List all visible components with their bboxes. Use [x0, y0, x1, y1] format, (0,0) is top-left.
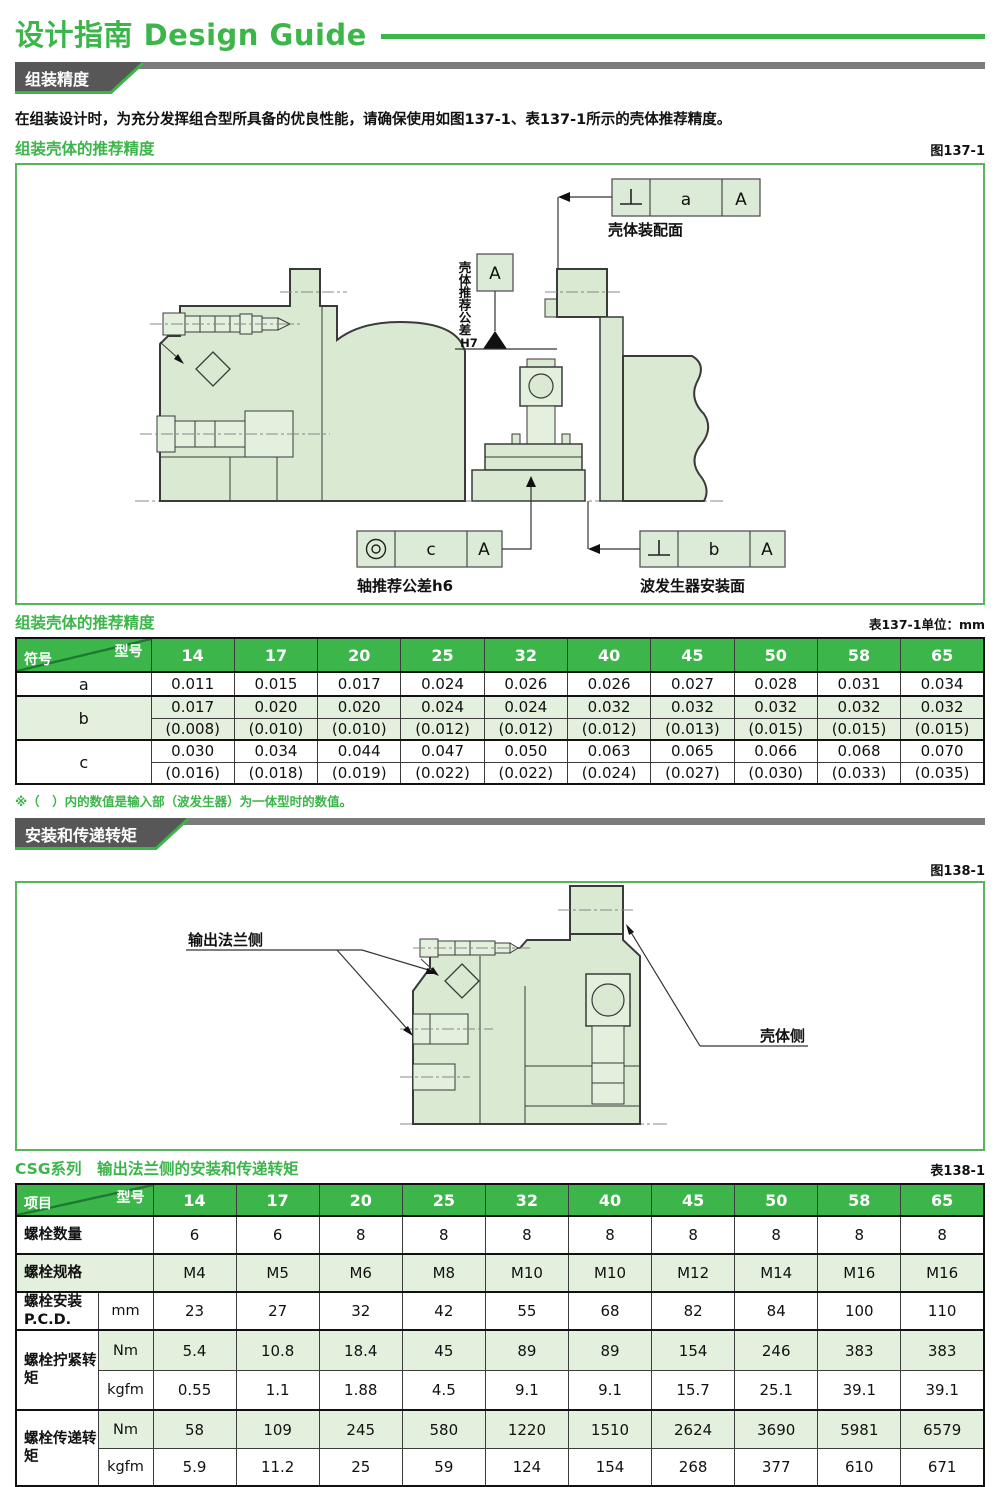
accuracy-table: 型号 符号 14 17 20 25 32 40 45 50 58 65 a 0.… — [15, 637, 985, 785]
cell: 8 — [485, 1216, 568, 1254]
cell: 1.1 — [236, 1370, 319, 1410]
figure1-heading-row: 组装壳体的推荐精度 图137-1 — [15, 137, 985, 159]
cell: 27 — [236, 1292, 319, 1330]
table-row: (0.016) (0.018) (0.019) (0.022) (0.022) … — [16, 762, 984, 784]
figure1: a A 壳体装配面 壳体推荐公差 H7 A c A — [15, 163, 985, 605]
corner-bottom-label: 项目 — [24, 1193, 52, 1213]
corner-top-label: 型号 — [115, 641, 143, 661]
model-header: 65 — [901, 1184, 984, 1216]
cell: 0.024 — [484, 696, 567, 718]
cell: M10 — [568, 1254, 651, 1292]
cell: 0.028 — [734, 672, 817, 696]
cell: 6 — [153, 1216, 236, 1254]
model-header: 32 — [484, 638, 567, 672]
symbol-cell: a — [16, 672, 151, 696]
cell: 110 — [901, 1292, 984, 1330]
fcf-b-datum: A — [761, 540, 773, 560]
model-header: 50 — [734, 638, 817, 672]
datum-a-letter: A — [489, 264, 501, 284]
cell: 58 — [153, 1410, 236, 1448]
section-banner-assembly-accuracy: 组装精度 — [15, 62, 985, 98]
cell: 0.020 — [318, 696, 401, 718]
model-header: 50 — [735, 1184, 818, 1216]
cell: 55 — [485, 1292, 568, 1330]
cell: 610 — [818, 1448, 901, 1486]
table1-ref: 表137-1单位：mm — [869, 614, 985, 633]
cell: 0.020 — [234, 696, 317, 718]
cell: (0.022) — [401, 762, 484, 784]
table2-title: CSG系列 输出法兰侧的安装和传递转矩 — [15, 1157, 299, 1179]
table-header-row: 型号 符号 14 17 20 25 32 40 45 50 58 65 — [16, 638, 984, 672]
cell: 8 — [402, 1216, 485, 1254]
cell: 1510 — [568, 1410, 651, 1448]
table-row: (0.008) (0.010) (0.010) (0.012) (0.012) … — [16, 718, 984, 740]
cell: 671 — [901, 1448, 984, 1486]
cell: 25.1 — [735, 1370, 818, 1410]
cell: 580 — [402, 1410, 485, 1448]
cell: 0.032 — [734, 696, 817, 718]
cell: 383 — [818, 1330, 901, 1370]
model-header: 58 — [817, 638, 900, 672]
section-banner-mounting-torque: 安装和传递转矩 — [15, 818, 985, 854]
table-row: a 0.011 0.015 0.017 0.024 0.026 0.026 0.… — [16, 672, 984, 696]
cell: 0.017 — [318, 672, 401, 696]
model-header: 14 — [151, 638, 234, 672]
housing-side-callout: 壳体侧 — [626, 924, 808, 1046]
cell: (0.012) — [401, 718, 484, 740]
housing-tolerance-grade: H7 — [460, 336, 478, 350]
cell: 45 — [402, 1330, 485, 1370]
unit-cell: kgfm — [98, 1448, 153, 1486]
row-label: 螺栓安装P.C.D. — [16, 1292, 98, 1330]
fcf-a-datum: A — [735, 190, 747, 210]
diagonal-header-cell: 型号 项目 — [16, 1184, 153, 1216]
cell: 4.5 — [402, 1370, 485, 1410]
cell: 6579 — [901, 1410, 984, 1448]
cell: 0.032 — [901, 696, 984, 718]
banner-label: 组装精度 — [25, 70, 90, 89]
bolt-torque-table: 型号 项目 14 17 20 25 32 40 45 50 58 65 螺栓数量… — [15, 1183, 985, 1487]
cell: 10.8 — [236, 1330, 319, 1370]
table-row: c 0.030 0.034 0.044 0.047 0.050 0.063 0.… — [16, 740, 984, 762]
figure1-ref: 图137-1 — [930, 140, 985, 159]
cell: 89 — [485, 1330, 568, 1370]
figure2-ref-row: 图138-1 — [15, 860, 985, 879]
cell: 0.026 — [567, 672, 650, 696]
cell: 1.88 — [319, 1370, 402, 1410]
housing-tolerance-label: 壳体推荐公差 — [457, 260, 472, 336]
cell: 11.2 — [236, 1448, 319, 1486]
cell: M10 — [485, 1254, 568, 1292]
cell: (0.016) — [151, 762, 234, 784]
cell: 0.065 — [651, 740, 734, 762]
cell: 245 — [319, 1410, 402, 1448]
cell: 59 — [402, 1448, 485, 1486]
table-header-row: 型号 项目 14 17 20 25 32 40 45 50 58 65 — [16, 1184, 984, 1216]
cell: (0.010) — [318, 718, 401, 740]
cell: 82 — [652, 1292, 735, 1330]
cell: 39.1 — [901, 1370, 984, 1410]
cell: 5.4 — [153, 1330, 236, 1370]
leader-arrow — [558, 192, 570, 202]
wg-mount-face-label: 波发生器安装面 — [640, 577, 745, 595]
cell: M6 — [319, 1254, 402, 1292]
row-label: 螺栓规格 — [16, 1254, 153, 1292]
bearing — [586, 974, 630, 1104]
housing-mount-face-label: 壳体装配面 — [607, 221, 683, 239]
cell: 383 — [901, 1330, 984, 1370]
cell: (0.035) — [901, 762, 984, 784]
cell: 154 — [652, 1330, 735, 1370]
leader-arrow — [626, 924, 634, 935]
model-header: 58 — [818, 1184, 901, 1216]
cell: 0.024 — [401, 696, 484, 718]
datum-triangle — [483, 331, 507, 349]
row-label: 螺栓拧紧转矩 — [16, 1330, 98, 1410]
cell: 6 — [236, 1216, 319, 1254]
unit-cell: mm — [98, 1292, 153, 1330]
cell: 0.066 — [734, 740, 817, 762]
figure2: 输出法兰侧 壳体侧 — [15, 881, 985, 1151]
model-header: 25 — [401, 638, 484, 672]
cell: M8 — [402, 1254, 485, 1292]
cell: 0.011 — [151, 672, 234, 696]
intro-text: 在组装设计时，为充分发挥组合型所具备的优良性能，请确保使用如图137-1、表13… — [15, 108, 985, 129]
cell: M16 — [818, 1254, 901, 1292]
design-guide-page: 设计指南 Design Guide 组装精度 在组装设计时，为充分发挥组合型所具… — [0, 12, 1000, 1487]
cell: 124 — [485, 1448, 568, 1486]
table-row: 螺栓传递转矩 Nm 58 109 245 580 1220 1510 2624 … — [16, 1410, 984, 1448]
model-header: 17 — [236, 1184, 319, 1216]
row-label: 螺栓传递转矩 — [16, 1410, 98, 1486]
cell: 0.031 — [817, 672, 900, 696]
cell: 0.034 — [901, 672, 984, 696]
cell: 32 — [319, 1292, 402, 1330]
cell: 8 — [652, 1216, 735, 1254]
table-row: 螺栓安装P.C.D. mm 23 27 32 42 55 68 82 84 10… — [16, 1292, 984, 1330]
cell: (0.008) — [151, 718, 234, 740]
cell: 100 — [818, 1292, 901, 1330]
cell: M5 — [236, 1254, 319, 1292]
cell: (0.022) — [484, 762, 567, 784]
unit-cell: Nm — [98, 1330, 153, 1370]
cell: 0.017 — [151, 696, 234, 718]
cell: 1220 — [485, 1410, 568, 1448]
figure2-ref: 图138-1 — [930, 864, 985, 879]
model-header: 14 — [153, 1184, 236, 1216]
cell: 0.063 — [567, 740, 650, 762]
cell: 0.070 — [901, 740, 984, 762]
cell: 39.1 — [818, 1370, 901, 1410]
model-header: 40 — [567, 638, 650, 672]
shaft-tolerance-label: 轴推荐公差h6 — [357, 577, 453, 595]
cell: 25 — [319, 1448, 402, 1486]
table-row: kgfm 5.9 11.2 25 59 124 154 268 377 610 … — [16, 1448, 984, 1486]
corner-bottom-label: 符号 — [24, 649, 52, 669]
cell: (0.033) — [817, 762, 900, 784]
cell: 42 — [402, 1292, 485, 1330]
model-header: 45 — [651, 638, 734, 672]
cell: 0.047 — [401, 740, 484, 762]
cell: 5981 — [818, 1410, 901, 1448]
figure2-drawing: 输出法兰侧 壳体侧 — [17, 883, 983, 1149]
table-row: b 0.017 0.020 0.020 0.024 0.024 0.032 0.… — [16, 696, 984, 718]
cell: 0.050 — [484, 740, 567, 762]
bearing-ball — [529, 374, 553, 398]
model-header: 25 — [402, 1184, 485, 1216]
corner-top-label: 型号 — [117, 1187, 145, 1207]
cell: (0.013) — [651, 718, 734, 740]
wave-generator — [472, 359, 585, 501]
cell: 0.032 — [567, 696, 650, 718]
cell: 3690 — [735, 1410, 818, 1448]
model-header: 20 — [318, 638, 401, 672]
cell: 0.027 — [651, 672, 734, 696]
leader-arrow — [588, 544, 600, 554]
table2-heading-row: CSG系列 输出法兰侧的安装和传递转矩 表138-1 — [15, 1157, 985, 1179]
cell: M14 — [735, 1254, 818, 1292]
table1-title: 组装壳体的推荐精度 — [15, 611, 155, 633]
table-row: 螺栓拧紧转矩 Nm 5.4 10.8 18.4 45 89 89 154 246… — [16, 1330, 984, 1370]
fcf-c-value: c — [426, 540, 435, 560]
cell: 0.032 — [817, 696, 900, 718]
cell: 84 — [735, 1292, 818, 1330]
title-rule — [381, 34, 985, 39]
cell: 23 — [153, 1292, 236, 1330]
table1-heading-row: 组装壳体的推荐精度 表137-1单位：mm — [15, 611, 985, 633]
cell: (0.015) — [734, 718, 817, 740]
cell: M4 — [153, 1254, 236, 1292]
gear-unit-cross-section — [400, 886, 640, 1124]
fcf-c-datum: A — [478, 540, 490, 560]
unit-cell: kgfm — [98, 1370, 153, 1410]
figure1-drawing: a A 壳体装配面 壳体推荐公差 H7 A c A — [17, 165, 983, 603]
diagonal-header-cell: 型号 符号 — [16, 638, 151, 672]
table1-note: ※（ ）内的数值是输入部（波发生器）为一体型时的数值。 — [15, 791, 985, 810]
cell: 68 — [568, 1292, 651, 1330]
cell: 0.032 — [651, 696, 734, 718]
cell: (0.015) — [901, 718, 984, 740]
table-row: 螺栓数量 6 6 8 8 8 8 8 8 8 8 — [16, 1216, 984, 1254]
model-header: 20 — [319, 1184, 402, 1216]
model-header: 32 — [485, 1184, 568, 1216]
cell: (0.010) — [234, 718, 317, 740]
cell: (0.019) — [318, 762, 401, 784]
cell: 0.024 — [401, 672, 484, 696]
cell: 8 — [319, 1216, 402, 1254]
cell: 377 — [735, 1448, 818, 1486]
cell: (0.027) — [651, 762, 734, 784]
row-label: 螺栓数量 — [16, 1216, 153, 1254]
fcf-b-value: b — [709, 540, 720, 560]
cell: 246 — [735, 1330, 818, 1370]
cell: (0.015) — [817, 718, 900, 740]
fcf-a-value: a — [681, 190, 691, 210]
cell: 8 — [735, 1216, 818, 1254]
page-title-bar: 设计指南 Design Guide — [15, 12, 985, 54]
table-row: 螺栓规格 M4 M5 M6 M8 M10 M10 M12 M14 M16 M16 — [16, 1254, 984, 1292]
page-title: 设计指南 Design Guide — [15, 12, 367, 54]
cell: 8 — [568, 1216, 651, 1254]
cell: (0.012) — [567, 718, 650, 740]
output-flange-callout: 输出法兰侧 — [186, 931, 437, 1036]
table-row: kgfm 0.55 1.1 1.88 4.5 9.1 9.1 15.7 25.1… — [16, 1370, 984, 1410]
cell: 8 — [901, 1216, 984, 1254]
cell: (0.030) — [734, 762, 817, 784]
cell: 9.1 — [485, 1370, 568, 1410]
cell: 0.026 — [484, 672, 567, 696]
cell: 109 — [236, 1410, 319, 1448]
symbol-cell: b — [16, 696, 151, 740]
cell: 15.7 — [652, 1370, 735, 1410]
cell: (0.024) — [567, 762, 650, 784]
housing-broken-section — [623, 356, 708, 501]
cell: (0.012) — [484, 718, 567, 740]
banner-label: 安装和传递转矩 — [25, 826, 137, 845]
cell: 2624 — [652, 1410, 735, 1448]
model-header: 17 — [234, 638, 317, 672]
fcf-b: b A 波发生器安装面 — [588, 501, 785, 595]
cell: M16 — [901, 1254, 984, 1292]
cell: 18.4 — [319, 1330, 402, 1370]
cell: 0.044 — [318, 740, 401, 762]
cell: 268 — [652, 1448, 735, 1486]
cell: 5.9 — [153, 1448, 236, 1486]
symbol-cell: c — [16, 740, 151, 784]
model-header: 45 — [652, 1184, 735, 1216]
unit-cell: Nm — [98, 1410, 153, 1448]
table2-ref: 表138-1 — [930, 1160, 985, 1179]
model-header: 40 — [568, 1184, 651, 1216]
fcf-a: a A 壳体装配面 — [558, 179, 760, 269]
cell: 154 — [568, 1448, 651, 1486]
cell: 0.55 — [153, 1370, 236, 1410]
leader-arrow — [403, 1026, 413, 1036]
cell: 89 — [568, 1330, 651, 1370]
output-flange-label: 输出法兰侧 — [188, 931, 263, 949]
datum-a: 壳体推荐公差 H7 A — [455, 254, 557, 350]
cell: 8 — [818, 1216, 901, 1254]
cell: 0.068 — [817, 740, 900, 762]
cell: 0.030 — [151, 740, 234, 762]
cell: M12 — [652, 1254, 735, 1292]
housing-side-label: 壳体侧 — [759, 1027, 805, 1045]
figure1-heading: 组装壳体的推荐精度 — [15, 137, 155, 159]
cell: (0.018) — [234, 762, 317, 784]
cell: 9.1 — [568, 1370, 651, 1410]
cell: 0.015 — [234, 672, 317, 696]
cell: 0.034 — [234, 740, 317, 762]
model-header: 65 — [901, 638, 984, 672]
gear-unit-cross-section — [140, 269, 465, 501]
banner-bar — [15, 62, 985, 69]
